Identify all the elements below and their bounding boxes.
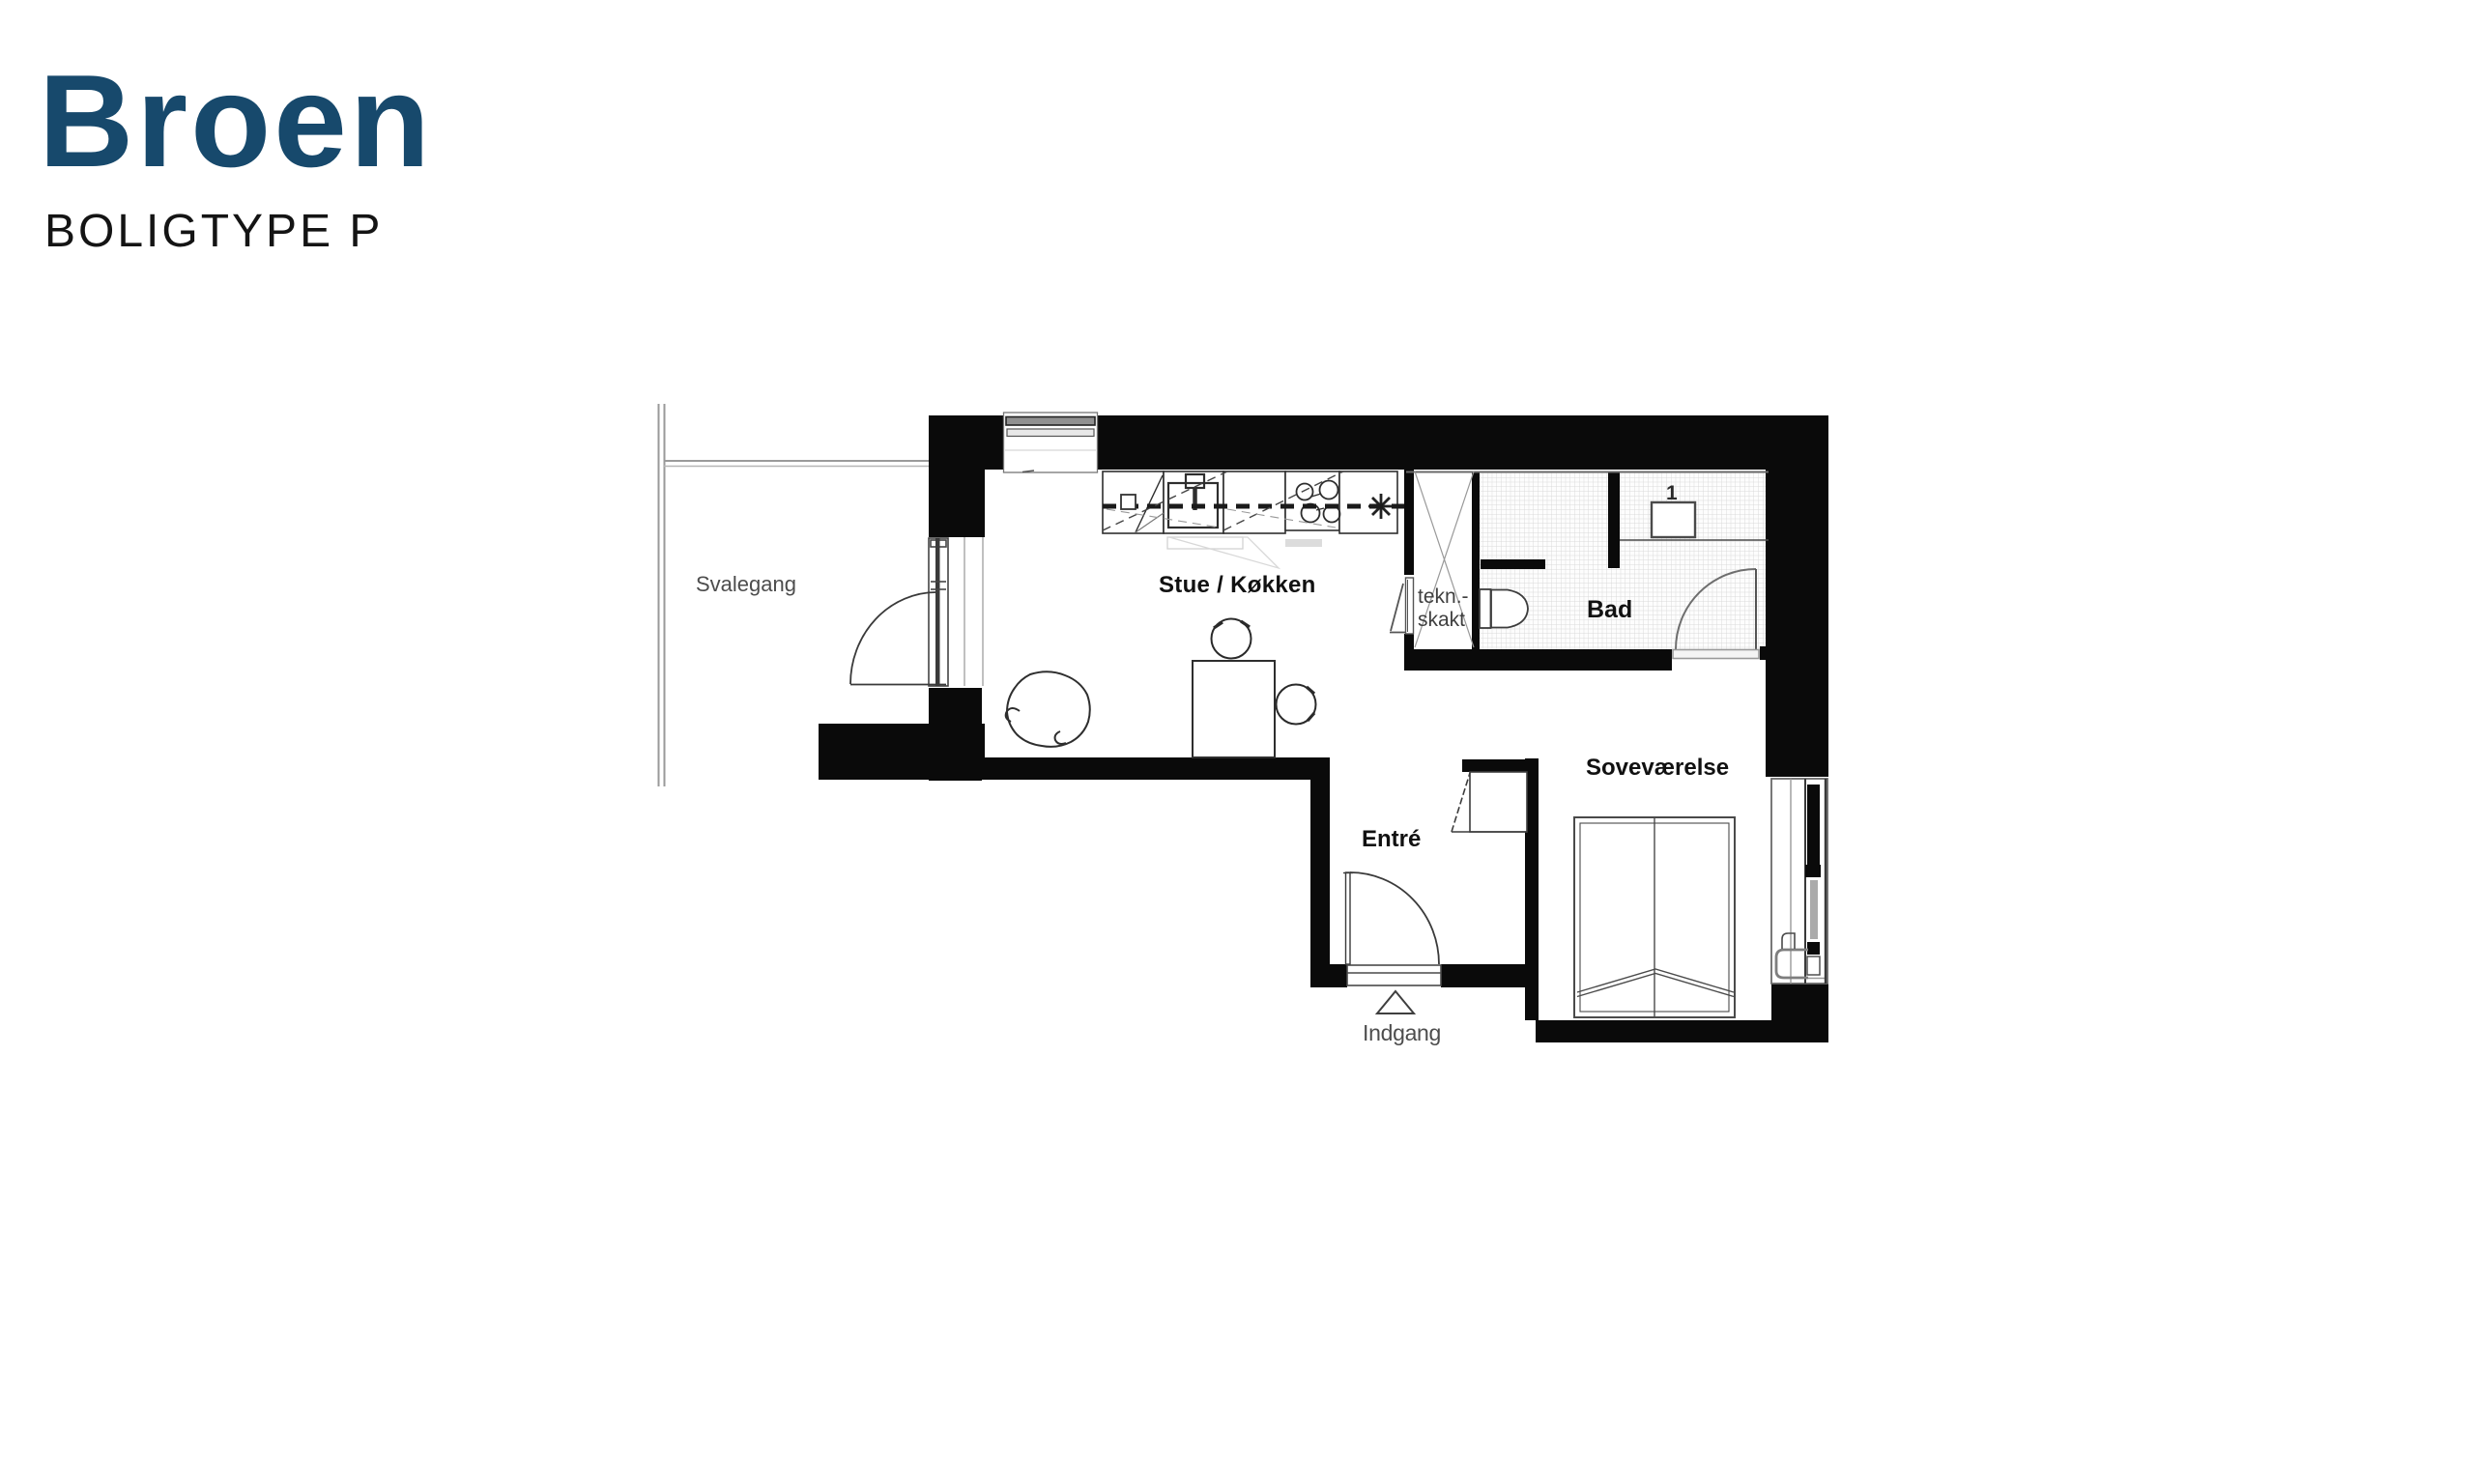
svg-text:skakt: skakt xyxy=(1418,609,1465,631)
svg-text:Stue / Køkken: Stue / Køkken xyxy=(1159,572,1316,598)
svg-text:Entré: Entré xyxy=(1362,826,1421,852)
svg-text:tekn.-: tekn.- xyxy=(1418,585,1469,608)
svg-text:Bad: Bad xyxy=(1587,596,1632,623)
svg-text:Soveværelse: Soveværelse xyxy=(1586,755,1729,781)
svg-text:Svalegang: Svalegang xyxy=(696,572,796,596)
svg-text:1: 1 xyxy=(1666,482,1678,504)
svg-text:Indgang: Indgang xyxy=(1363,1020,1441,1045)
